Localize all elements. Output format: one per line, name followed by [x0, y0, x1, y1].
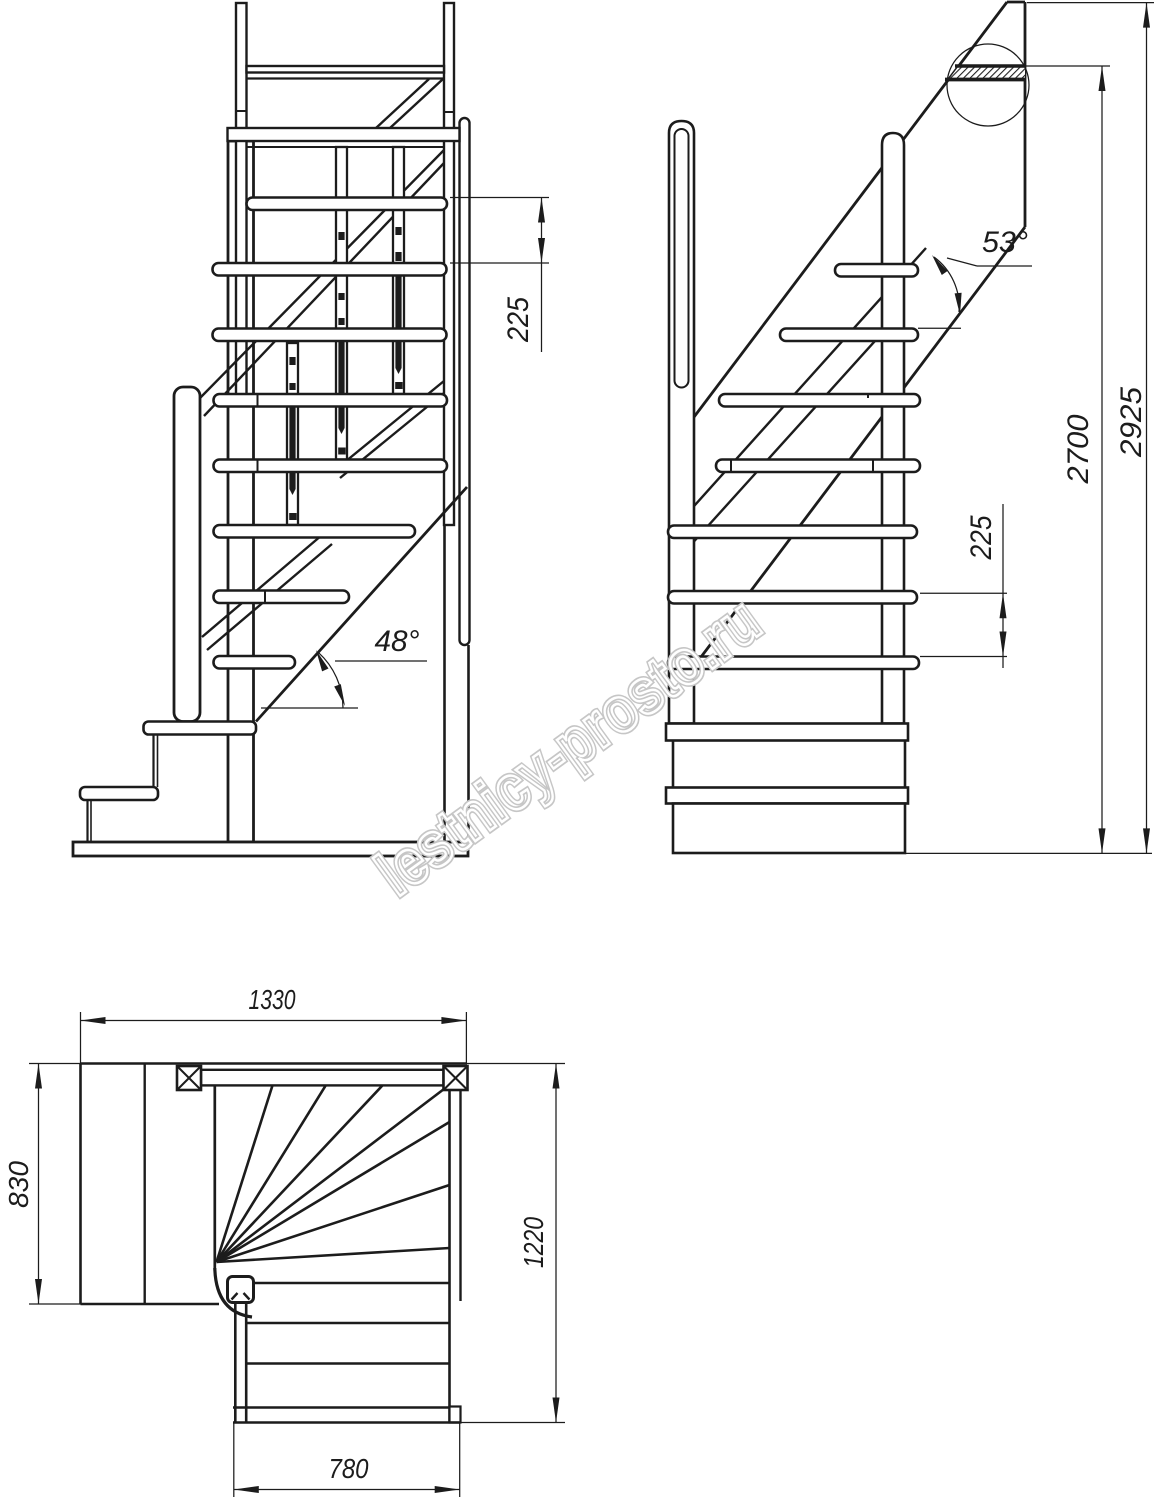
svg-text:53°: 53°: [982, 226, 1028, 259]
svg-text:780: 780: [329, 1453, 369, 1484]
svg-text:1220: 1220: [518, 1217, 549, 1268]
svg-text:2925: 2925: [1115, 387, 1148, 458]
svg-text:225: 225: [502, 297, 535, 343]
svg-text:1330: 1330: [249, 984, 296, 1015]
svg-text:48°: 48°: [375, 625, 420, 658]
svg-text:830: 830: [3, 1161, 34, 1208]
svg-text:2700: 2700: [1062, 414, 1095, 484]
svg-text:225: 225: [965, 515, 998, 560]
